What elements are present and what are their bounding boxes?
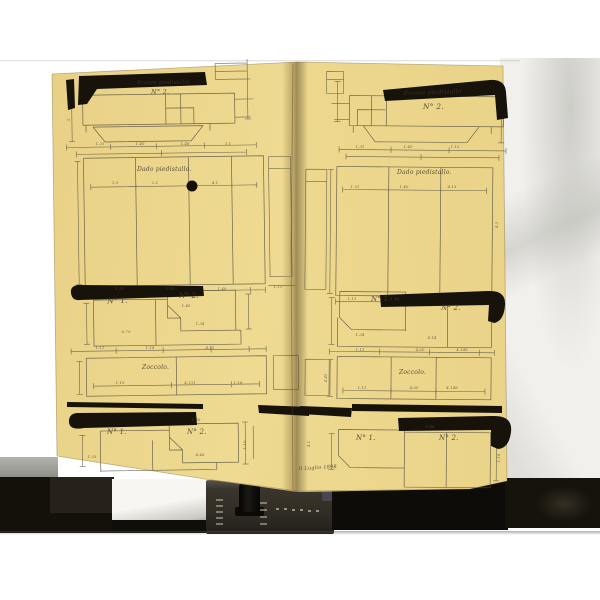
- ruler-knob: [239, 482, 260, 512]
- table-dark-left-inner: [50, 477, 114, 513]
- left-top-number: N° 2.: [151, 89, 169, 96]
- right-mid-n2-label: N° 2.: [441, 305, 461, 312]
- left-mid-n1-label: N° 1.: [107, 297, 128, 305]
- document-center-fold: [282, 62, 308, 492]
- table-dark-right-patch: [538, 487, 590, 521]
- right-top-number: N° 2.: [423, 103, 444, 111]
- left-dado-label: Dado piedistallo.: [137, 167, 192, 173]
- right-bottom-n1-label: N° 1.: [356, 435, 376, 442]
- left-top-title: Fronte piedistallo: [137, 81, 190, 87]
- right-dado-label: Dado piedistallo.: [397, 170, 452, 176]
- backdrop-paper: [500, 58, 600, 480]
- backdrop-gap-white: [112, 479, 208, 522]
- left-bottom-n1-label: N° 1.: [107, 429, 127, 436]
- photo-of-archival-drawing: 1.311.401.481.151.92.14.11.311.101.401.4…: [0, 0, 600, 600]
- right-bottom-n2-label: N° 2.: [439, 435, 459, 442]
- left-mid-n2-label: N° 2.: [179, 293, 199, 300]
- band-bottom-shadow: [0, 531, 600, 535]
- table-edge-strip: [0, 457, 58, 478]
- right-mid-n1-label: N° 1.: [371, 296, 391, 303]
- left-zoccolo-label: Zoccolo.: [142, 365, 169, 371]
- backdrop-edge-shadow: [0, 60, 520, 62]
- right-zoccolo-label: Zoccolo.: [399, 370, 426, 376]
- left-bottom-n2-label: N° 2.: [187, 429, 207, 436]
